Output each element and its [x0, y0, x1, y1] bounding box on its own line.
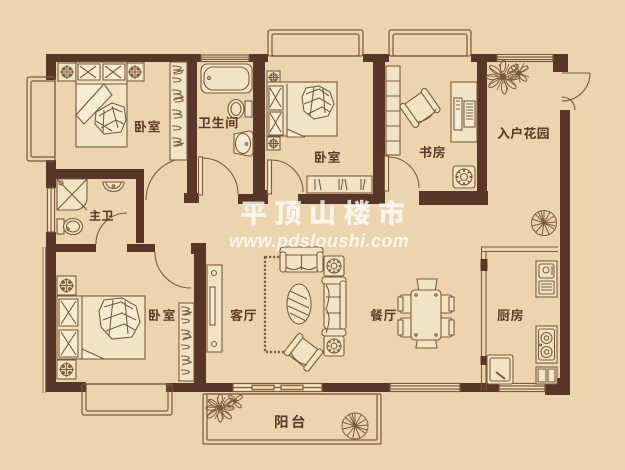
svg-text:www.pdsloushi.com: www.pdsloushi.com: [229, 231, 409, 251]
